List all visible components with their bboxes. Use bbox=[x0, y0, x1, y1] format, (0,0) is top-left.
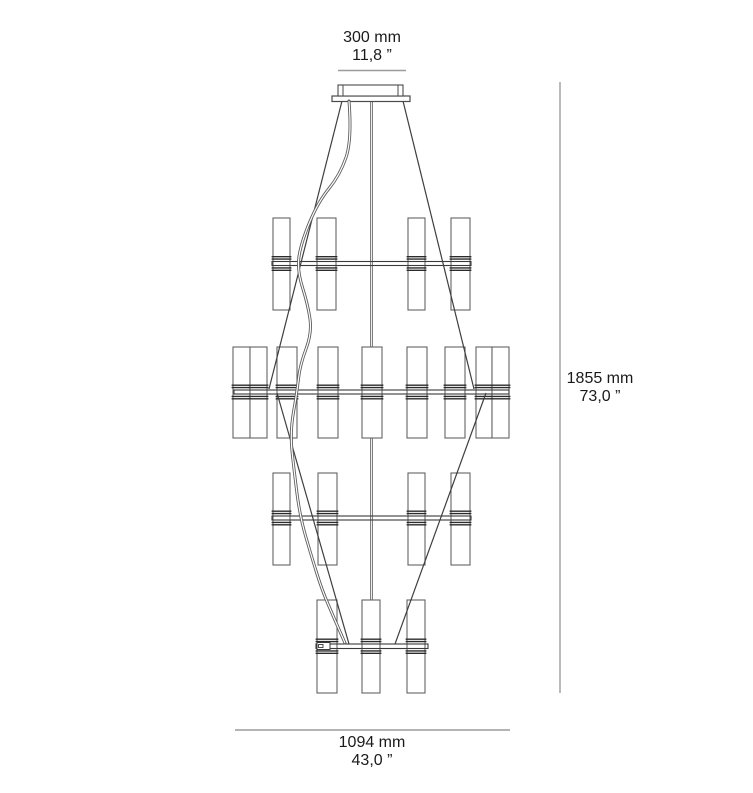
top-width-inch: 11,8 ” bbox=[292, 47, 452, 65]
chandelier-drawing bbox=[0, 0, 753, 793]
tier-2-cylinder bbox=[318, 347, 338, 438]
tier-2-cylinder bbox=[492, 347, 509, 438]
cord-connector bbox=[317, 643, 330, 650]
height-mm: 1855 mm bbox=[561, 370, 639, 388]
bottom-width-inch: 43,0 ” bbox=[292, 752, 452, 770]
technical-drawing-page: 300 mm 11,8 ” 1855 mm 73,0 ” 1094 mm 43,… bbox=[0, 0, 753, 793]
tier-3-cylinder bbox=[451, 473, 470, 565]
tier-4-cylinder bbox=[407, 600, 425, 693]
tier-2-cylinder bbox=[277, 347, 297, 438]
tier-4-cylinder bbox=[362, 600, 380, 693]
tier-2-cylinder bbox=[233, 347, 250, 438]
tier-3-cylinder bbox=[318, 473, 337, 565]
tier-1-cylinder bbox=[273, 218, 290, 310]
tier-2-cylinder bbox=[445, 347, 465, 438]
tier-2-cylinder bbox=[476, 347, 492, 438]
tier-2-cylinder bbox=[362, 347, 382, 438]
top-width-dimension-label: 300 mm 11,8 ” bbox=[292, 29, 452, 65]
ceiling-canopy-plate bbox=[332, 96, 410, 102]
tier-3-cylinder bbox=[408, 473, 425, 565]
height-inch: 73,0 ” bbox=[561, 388, 639, 406]
tier-2-cylinder bbox=[407, 347, 427, 438]
top-width-mm: 300 mm bbox=[292, 29, 452, 47]
tier-2-cylinder bbox=[250, 347, 267, 438]
height-dimension-label: 1855 mm 73,0 ” bbox=[561, 370, 639, 406]
ceiling-canopy-box bbox=[338, 85, 403, 96]
tier-1-cylinder bbox=[408, 218, 425, 310]
tier-1-cylinder bbox=[317, 218, 336, 310]
bottom-width-mm: 1094 mm bbox=[292, 734, 452, 752]
tier-1-cylinder bbox=[451, 218, 470, 310]
bottom-width-dimension-label: 1094 mm 43,0 ” bbox=[292, 734, 452, 770]
tier-3-cylinder bbox=[273, 473, 290, 565]
